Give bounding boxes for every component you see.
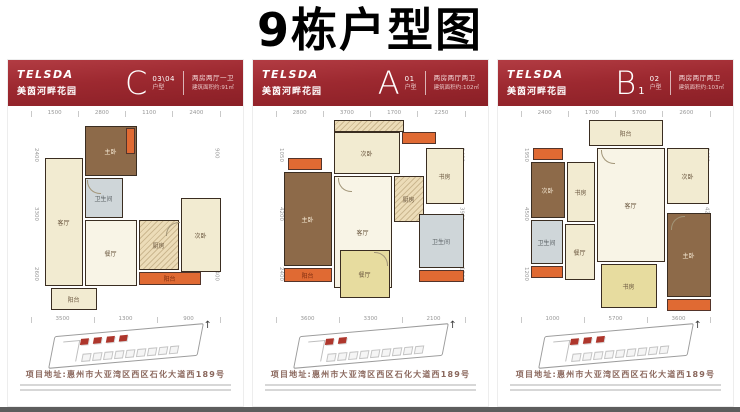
unit-cell [358, 350, 369, 359]
disclaimer-text-lines [265, 384, 477, 393]
dim-label: 900 [213, 148, 219, 159]
dim-label: 2600 [33, 267, 39, 281]
room-balcony: 阳台 [139, 272, 201, 285]
unit-cell [347, 351, 358, 360]
dim-label: 3500 [31, 317, 94, 323]
unit-number-stack: 02 户型 [650, 75, 662, 91]
room-label: 主卧 [682, 251, 694, 260]
unit-cell [102, 351, 113, 360]
room-label: 卫生间 [537, 238, 555, 247]
room-dining: 餐厅 [85, 220, 137, 286]
room-label: 餐厅 [573, 248, 585, 257]
project-address: 项目地址:惠州市大亚湾区西区石化大道西189号 [8, 369, 243, 380]
site-key-plan: ↑ [539, 324, 691, 369]
room-bathroom: 卫生间 [419, 214, 464, 268]
floorplan-drawing: 1500 2800 1100 2400 2400 3300 2600 900 2… [19, 110, 233, 324]
dim-label: 1000 [521, 317, 584, 323]
plan-canvas: 1050 4200 2400 2400 3900 1500 次卧 书房 主卧 客… [276, 118, 466, 316]
unit-type: 两房两厅两卫 [434, 74, 479, 84]
room-study: 书房 [426, 148, 464, 204]
unit-area: 建筑面积约:103㎡ [679, 84, 724, 92]
unit-cell [92, 352, 103, 361]
dim-label: 3700 [323, 111, 370, 117]
header-divider [183, 71, 184, 95]
brand-block: TELSDA 美茵河畔花园 [17, 69, 77, 96]
dim-label: 4500 [523, 207, 529, 221]
unit-cell [337, 352, 348, 361]
dim-label: 1200 [523, 267, 529, 281]
floorplan-panel-a: TELSDA 美茵河畔花园 A 01 户型 两房两厅两卫 建筑面积约:102㎡ … [253, 60, 488, 406]
unit-cell [603, 350, 614, 359]
room-master-bedroom: 主卧 [284, 172, 332, 266]
dim-label: 2250 [417, 111, 465, 117]
unit-cell [326, 353, 337, 362]
plan-canvas: 1950 4500 1200 2400 4200 2100 阳台 次卧 书房 客… [521, 118, 711, 316]
room-living: 客厅 [597, 148, 665, 262]
dim-label: 2600 [662, 111, 710, 117]
dim-label: 1700 [370, 111, 417, 117]
telsda-logo: TELSDA [507, 69, 567, 81]
unit-info-block: A 01 户型 两房两厅两卫 建筑面积约:102㎡ [378, 67, 479, 99]
room-bedroom2: 次卧 [531, 162, 565, 218]
disclaimer-text-lines [510, 384, 722, 393]
unit-cell [413, 345, 424, 354]
project-address: 项目地址:惠州市大亚湾区西区石化大道西189号 [253, 369, 488, 380]
dim-label: 4200 [278, 207, 284, 221]
floorplan-panel-c: TELSDA 美茵河畔花园 C 03\04 户型 两房两厅一卫 建筑面积约:91… [8, 60, 243, 406]
room-top-balcony: 阳台 [589, 120, 663, 146]
dim-label: 2400 [172, 111, 220, 117]
plan-canvas: 2400 3300 2600 900 2850 2400 客厅 主卧 卫生间 餐… [31, 118, 221, 316]
room-label: 书房 [622, 282, 634, 291]
unit-cell [647, 346, 658, 355]
dim-label: 3600 [276, 317, 339, 323]
room-label: 厨房 [152, 241, 164, 250]
room-label: 次卧 [681, 172, 693, 181]
room-dining: 餐厅 [565, 224, 595, 280]
unit-info-block: B 1 02 户型 两房两厅两卫 建筑面积约:103㎡ [615, 67, 724, 99]
dimension-row-top: 2400 1700 5700 2600 [521, 110, 711, 118]
room-label: 厨房 [402, 195, 414, 204]
panel-header: TELSDA 美茵河畔花园 B 1 02 户型 两房两厅两卫 建筑面积约:103… [498, 60, 733, 106]
unit-spec-stack: 两房两厅两卫 建筑面积约:102㎡ [434, 74, 479, 92]
dim-label: 1700 [568, 111, 615, 117]
unit-cell [124, 349, 135, 358]
telsda-logo: TELSDA [17, 69, 77, 81]
unit-type: 两房两厅一卫 [192, 74, 234, 84]
unit-letter: C [125, 67, 147, 99]
unit-highlight [569, 338, 578, 345]
telsda-logo: TELSDA [262, 69, 322, 81]
room-bedroom2: 次卧 [181, 198, 221, 272]
unit-cell [614, 349, 625, 358]
brand-block: TELSDA 美茵河畔花园 [507, 69, 567, 96]
unit-cell [625, 348, 636, 357]
unit-cell [380, 348, 391, 357]
dimension-row-top: 1500 2800 1100 2400 [31, 110, 221, 118]
dimension-row-bottom: 1000 5700 3600 [521, 316, 711, 324]
unit-highlight [105, 336, 114, 343]
dim-label: 2800 [78, 111, 125, 117]
room-living: 客厅 [45, 158, 83, 286]
project-name: 美茵河畔花园 [507, 84, 567, 97]
north-arrow-icon: ↑ [203, 320, 211, 331]
room-label: 客厅 [356, 228, 368, 237]
room-label: 阳台 [163, 274, 175, 283]
unit-number-stack: 01 户型 [405, 75, 417, 91]
north-arrow-icon: ↑ [693, 320, 701, 331]
room-label: 客厅 [624, 201, 636, 210]
dim-label: 1050 [278, 148, 284, 162]
unit-highlight [92, 337, 101, 344]
room-label: 主卧 [301, 215, 313, 224]
project-address: 项目地址:惠州市大亚湾区西区石化大道西189号 [498, 369, 733, 380]
unit-spec-stack: 两房两厅两卫 建筑面积约:103㎡ [679, 74, 724, 92]
unit-number: 03\04 [152, 75, 175, 83]
unit-cell [135, 348, 146, 357]
room-balcony [533, 148, 563, 160]
north-arrow-icon: ↑ [448, 320, 456, 331]
unit-number-label: 户型 [152, 84, 175, 91]
unit-spec-stack: 两房两厅一卫 建筑面积约:91㎡ [192, 74, 234, 92]
unit-cell [168, 345, 179, 354]
unit-cell [658, 345, 669, 354]
room-balcony [419, 270, 464, 282]
room-balcony [288, 158, 322, 170]
unit-cell [391, 347, 402, 356]
dim-label: 1950 [523, 148, 529, 162]
unit-highlight [79, 338, 88, 345]
dim-label: 1100 [125, 111, 172, 117]
floorplan-panel-b: TELSDA 美茵河畔花园 B 1 02 户型 两房两厅两卫 建筑面积约:103… [498, 60, 733, 406]
unit-letter: B [615, 67, 636, 99]
room-bathroom: 卫生间 [531, 220, 563, 264]
header-divider [670, 71, 671, 95]
site-key-plan: ↑ [49, 324, 201, 369]
room-label: 次卧 [541, 186, 553, 195]
unit-highlight [324, 338, 333, 345]
room-label: 卫生间 [94, 194, 112, 203]
header-divider [425, 71, 426, 95]
panel-header: TELSDA 美茵河畔花园 C 03\04 户型 两房两厅一卫 建筑面积约:91… [8, 60, 243, 106]
unit-cell [402, 346, 413, 355]
unit-cell [582, 352, 593, 361]
unit-highlight [595, 336, 604, 343]
unit-info-block: C 03\04 户型 两房两厅一卫 建筑面积约:91㎡ [125, 67, 234, 99]
dim-label: 2800 [276, 111, 323, 117]
site-key-plan: ↑ [294, 324, 446, 369]
project-name: 美茵河畔花园 [262, 84, 322, 97]
room-balcony2: 阳台 [51, 288, 97, 310]
room-label: 阳台 [619, 129, 631, 138]
unit-cell [146, 347, 157, 356]
unit-cell [369, 349, 380, 358]
unit-number-stack: 03\04 户型 [152, 75, 175, 91]
project-name: 美茵河畔花园 [17, 84, 77, 97]
unit-cell [113, 350, 124, 359]
room-label: 客厅 [57, 218, 69, 227]
dim-label: 2400 [278, 267, 284, 281]
room-label: 卫生间 [432, 237, 450, 246]
room-balcony [531, 266, 563, 278]
brand-block: TELSDA 美茵河畔花园 [262, 69, 322, 96]
unit-letter: A [378, 67, 400, 99]
bottom-edge-bar [0, 407, 740, 412]
dimension-row-bottom: 3500 1300 900 [31, 316, 221, 324]
unit-cell [571, 353, 582, 362]
disclaimer-text-lines [20, 384, 232, 393]
unit-area: 建筑面积约:102㎡ [434, 84, 479, 92]
unit-highlight [582, 337, 591, 344]
dim-label: 2400 [521, 111, 568, 117]
unit-number: 01 [405, 75, 417, 83]
room-label: 书房 [574, 188, 586, 197]
unit-number-label: 户型 [650, 84, 662, 91]
dim-label: 5700 [615, 111, 662, 117]
room-top-balcony [334, 120, 404, 132]
unit-number: 02 [650, 75, 662, 83]
unit-number-label: 户型 [405, 84, 417, 91]
dim-label: 1500 [31, 111, 78, 117]
room-label: 主卧 [104, 147, 116, 156]
dim-label: 5700 [584, 317, 647, 323]
room-bedroom3: 次卧 [667, 148, 709, 204]
floorplan-drawing: 2400 1700 5700 2600 1950 4500 1200 2400 … [509, 110, 723, 324]
room-label: 阳台 [301, 271, 313, 280]
room-label: 次卧 [194, 231, 206, 240]
dim-label: 3300 [339, 317, 402, 323]
unit-type: 两房两厅两卫 [679, 74, 724, 84]
dimension-row-bottom: 3600 3300 2100 [276, 316, 466, 324]
dim-label: 3300 [33, 207, 39, 221]
dimension-row-top: 2800 3700 1700 2250 [276, 110, 466, 118]
unit-highlight [118, 335, 127, 342]
floorplan-drawing: 2800 3700 1700 2250 1050 4200 2400 2400 … [264, 110, 478, 324]
room-bedroom2: 次卧 [334, 132, 400, 174]
room-balcony [402, 132, 436, 144]
dim-label: 2400 [33, 148, 39, 162]
unit-cell [157, 346, 168, 355]
room-label: 阳台 [67, 295, 79, 304]
unit-letter-subscript: 1 [638, 86, 644, 97]
unit-area: 建筑面积约:91㎡ [192, 84, 234, 92]
room-balcony [667, 299, 711, 311]
room-balcony: 阳台 [284, 268, 332, 282]
dim-label: 1300 [94, 317, 157, 323]
room-label: 次卧 [360, 149, 372, 158]
unit-cell [592, 351, 603, 360]
room-label: 书房 [438, 172, 450, 181]
room-label: 餐厅 [104, 249, 116, 258]
unit-cell [636, 347, 647, 356]
panel-header: TELSDA 美茵河畔花园 A 01 户型 两房两厅两卫 建筑面积约:102㎡ [253, 60, 488, 106]
page-title: 9栋户型图 [0, 0, 740, 60]
wardrobe-strip [126, 128, 135, 154]
unit-cell [81, 353, 92, 362]
room-study2: 书房 [601, 264, 657, 308]
room-study: 书房 [567, 162, 595, 222]
unit-highlight [337, 337, 346, 344]
room-label: 餐厅 [358, 270, 370, 279]
